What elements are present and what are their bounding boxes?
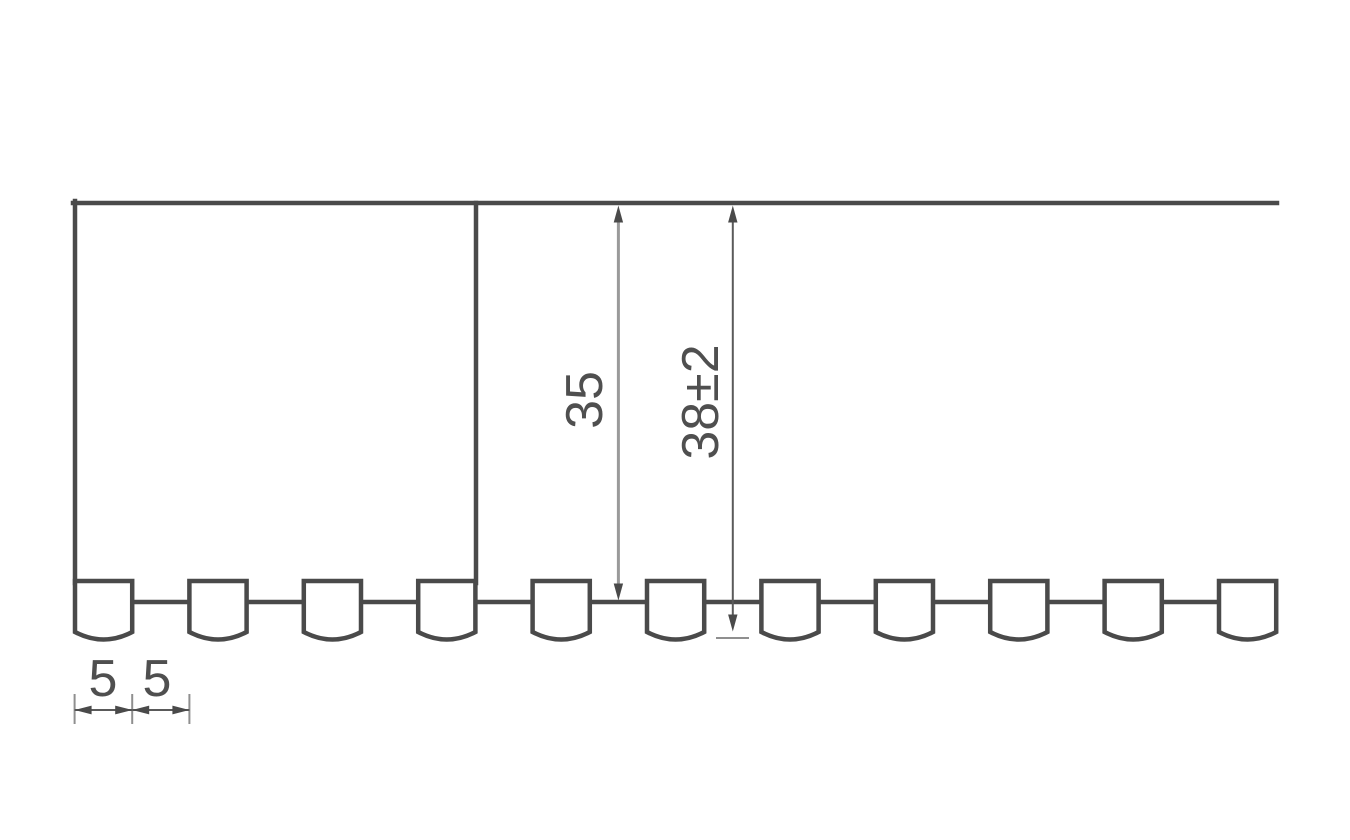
dimension-38-arrow-down-icon (728, 615, 737, 632)
tooth-segment (876, 581, 933, 640)
tooth-segment (189, 581, 246, 640)
tooth-segment (990, 581, 1047, 640)
tooth-segment (304, 581, 361, 640)
pitch-arrow-right-2-icon (172, 706, 189, 715)
pitch-label-2: 5 (143, 650, 172, 708)
dimension-35-arrow-up-icon (614, 206, 623, 223)
pitch-label-1: 5 (89, 650, 118, 708)
tooth-segment (647, 581, 704, 640)
tooth-segment (418, 581, 475, 640)
dimension-35-arrow-down-icon (614, 584, 623, 601)
pitch-arrow-right-1-icon (115, 706, 132, 715)
dimension-35: 35 (556, 206, 623, 601)
dimension-38-label: 38±2 (672, 344, 730, 459)
teeth-row (75, 581, 1276, 640)
dimension-38-arrow-up-icon (728, 206, 737, 223)
dimension-35-label: 35 (556, 371, 614, 429)
tooth-segment (1219, 581, 1276, 640)
tooth-segment (75, 581, 132, 640)
technical-drawing-canvas: 35 38±2 5 5 (0, 0, 1350, 840)
tooth-segment (761, 581, 818, 640)
pitch-dimensions: 5 5 (75, 650, 190, 724)
dimension-38: 38±2 (672, 206, 749, 639)
tooth-segment (533, 581, 590, 640)
tooth-segment (1105, 581, 1162, 640)
